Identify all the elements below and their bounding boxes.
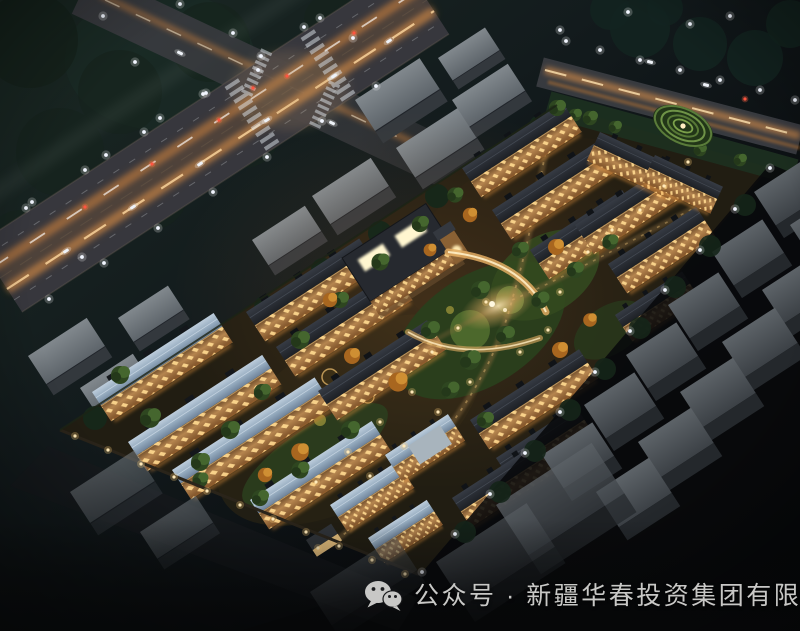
wechat-icon (364, 579, 404, 613)
watermark-caption: 公众号 · 新疆华春投资集团有限公司 (364, 579, 800, 613)
watermark-text: 公众号 · 新疆华春投资集团有限公司 (414, 584, 800, 609)
aerial-night-rendering (0, 0, 800, 631)
rendering-canvas: 公众号 · 新疆华春投资集团有限公司 (0, 0, 800, 631)
bottom-fade (0, 520, 800, 631)
